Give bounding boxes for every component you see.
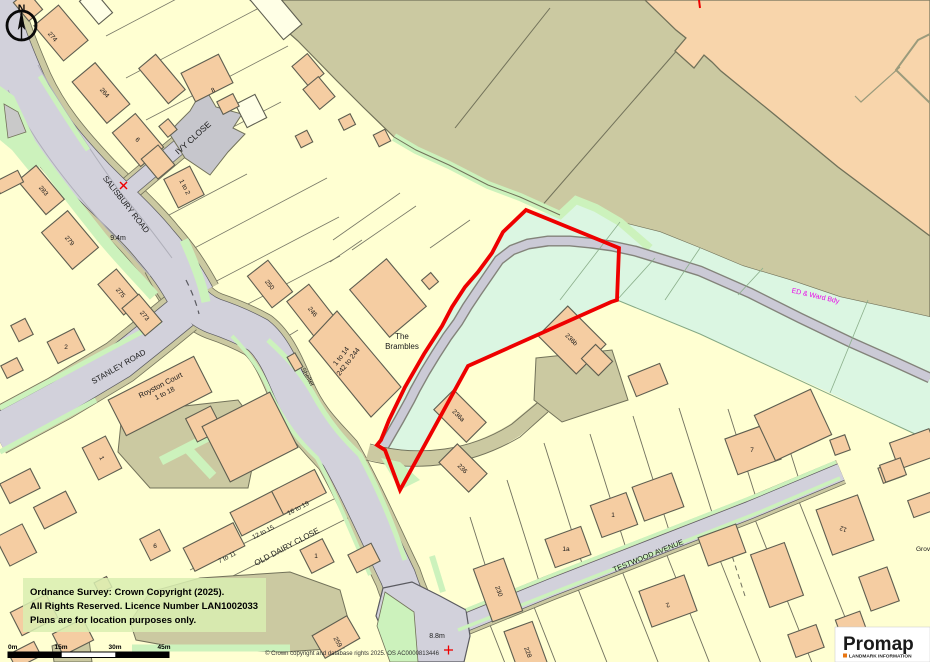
svg-text:1: 1 (314, 553, 318, 560)
svg-text:Brambles: Brambles (385, 342, 419, 351)
svg-text:1: 1 (611, 512, 615, 519)
svg-text:Promap: Promap (843, 634, 914, 655)
svg-text:Ordnance Survey: Crown Copyrig: Ordnance Survey: Crown Copyright (2025). (30, 587, 224, 598)
svg-text:8.8m: 8.8m (429, 633, 445, 640)
svg-text:LANDMARK INFORMATION: LANDMARK INFORMATION (849, 654, 912, 660)
svg-text:9.4m: 9.4m (110, 235, 126, 242)
svg-text:45m: 45m (157, 644, 170, 651)
svg-text:Plans are for location purpose: Plans are for location purposes only. (30, 615, 196, 626)
svg-text:N: N (18, 3, 26, 15)
svg-text:1a: 1a (562, 546, 570, 553)
svg-text:© Crown copyright and database: © Crown copyright and database rights 20… (265, 650, 440, 657)
svg-text:0m: 0m (8, 644, 18, 651)
svg-text:7: 7 (750, 447, 754, 454)
svg-text:2: 2 (64, 344, 68, 351)
svg-text:6: 6 (153, 543, 157, 550)
svg-text:All Rights Reserved. Licence N: All Rights Reserved. Licence Number LAN1… (30, 601, 258, 612)
svg-text:30m: 30m (108, 644, 121, 651)
svg-text:The: The (395, 332, 409, 341)
svg-text:Grove: Grove (916, 546, 930, 553)
svg-text:15m: 15m (54, 644, 67, 651)
